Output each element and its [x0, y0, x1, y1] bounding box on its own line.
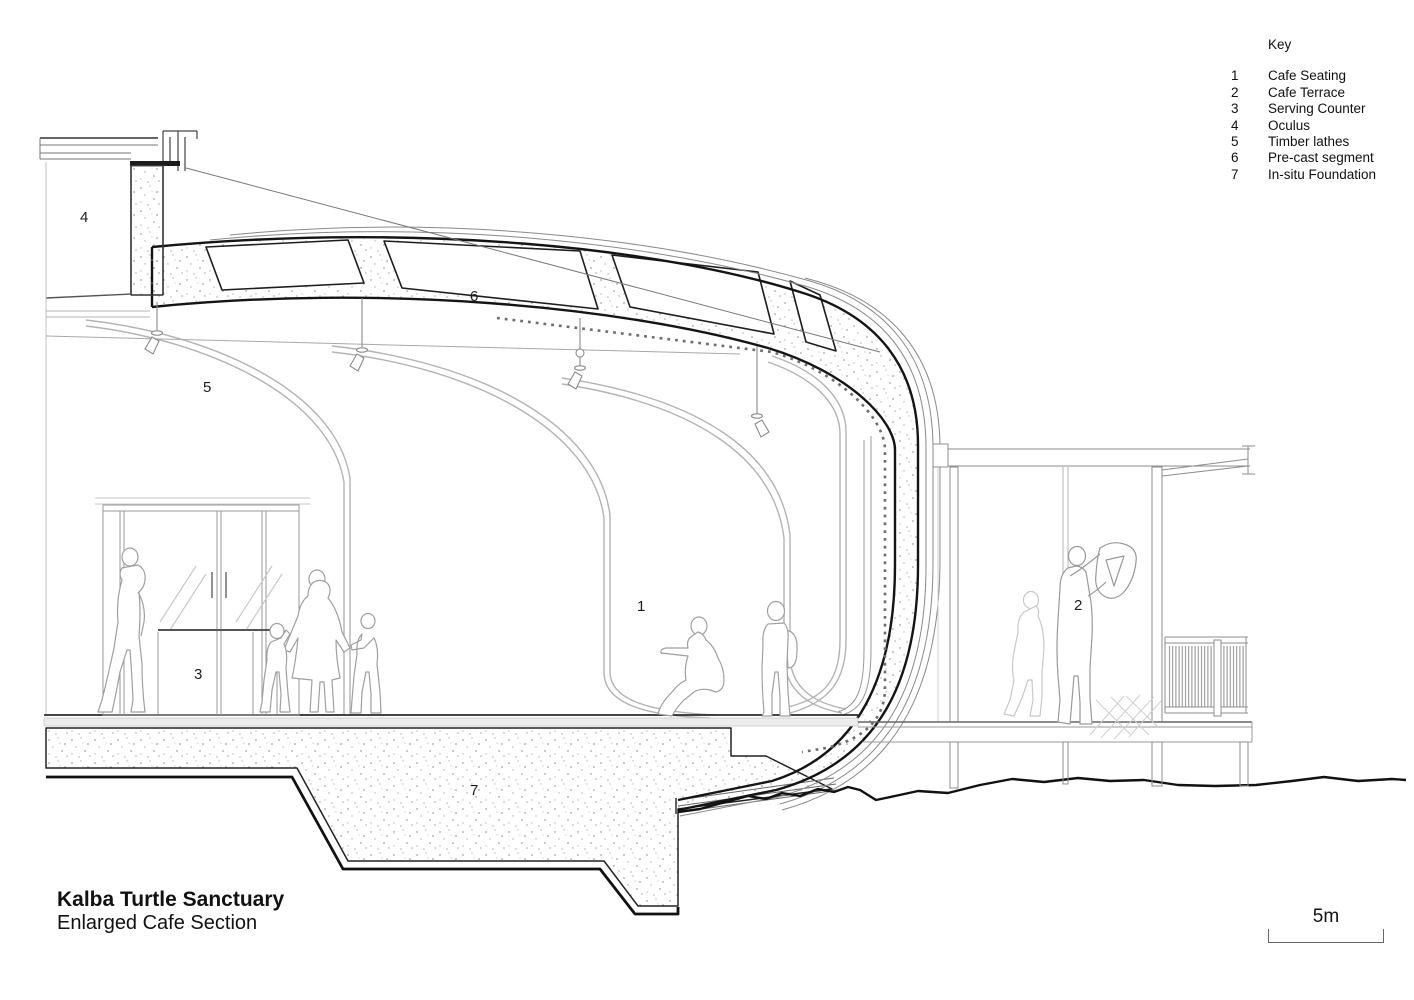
upstand-cap	[130, 161, 180, 166]
scale-bracket	[1268, 929, 1384, 943]
label-cafe-seating: 1	[637, 598, 645, 615]
key-item-number: 2	[1231, 85, 1268, 101]
key-row: 3Serving Counter	[1231, 101, 1376, 117]
drawing-title: Enlarged Cafe Section	[57, 912, 284, 935]
key-row: 1Cafe Seating	[1231, 68, 1376, 84]
paper-background	[0, 0, 1414, 1000]
key-item-label: Oculus	[1268, 118, 1310, 133]
label-oculus: 4	[80, 209, 88, 226]
key-item-label: Serving Counter	[1268, 101, 1366, 116]
drawing-sheet: 4 5 6 1 3 2 7 Key 1Cafe Seating 2Cafe Te…	[0, 0, 1414, 1000]
key-item-label: In-situ Foundation	[1268, 167, 1376, 182]
key-row: 2Cafe Terrace	[1231, 85, 1376, 101]
scale-bar: 5m	[1268, 906, 1384, 943]
label-cafe-terrace: 2	[1074, 597, 1082, 614]
key-item-number: 4	[1231, 118, 1268, 134]
oculus-upstand	[131, 166, 163, 295]
label-serving-counter: 3	[194, 666, 202, 683]
key-item-number: 7	[1231, 167, 1268, 183]
key-panel: Key 1Cafe Seating 2Cafe Terrace 3Serving…	[1231, 37, 1376, 183]
key-item-number: 3	[1231, 101, 1268, 117]
label-precast-segment: 6	[470, 288, 478, 305]
key-item-number: 1	[1231, 68, 1268, 84]
track-junction	[576, 349, 584, 357]
terrace-railing	[1165, 637, 1248, 716]
key-row: 4Oculus	[1231, 118, 1376, 134]
key-item-label: Cafe Terrace	[1268, 85, 1345, 100]
section-drawing: 4 5 6 1 3 2 7	[0, 0, 1414, 1000]
key-heading: Key	[1268, 37, 1376, 53]
key-item-number: 5	[1231, 134, 1268, 150]
key-item-label: Cafe Seating	[1268, 68, 1346, 83]
key-row: 5Timber lathes	[1231, 134, 1376, 150]
label-timber-lathes: 5	[203, 379, 211, 396]
key-item-number: 6	[1231, 150, 1268, 166]
key-item-label: Pre-cast segment	[1268, 150, 1374, 165]
label-insitu-foundation: 7	[470, 782, 478, 799]
key-row: 7In-situ Foundation	[1231, 167, 1376, 183]
key-item-label: Timber lathes	[1268, 134, 1349, 149]
project-title: Kalba Turtle Sanctuary	[57, 888, 284, 912]
scale-label: 5m	[1268, 906, 1384, 928]
title-block: Kalba Turtle Sanctuary Enlarged Cafe Sec…	[57, 888, 284, 935]
key-row: 6Pre-cast segment	[1231, 150, 1376, 166]
